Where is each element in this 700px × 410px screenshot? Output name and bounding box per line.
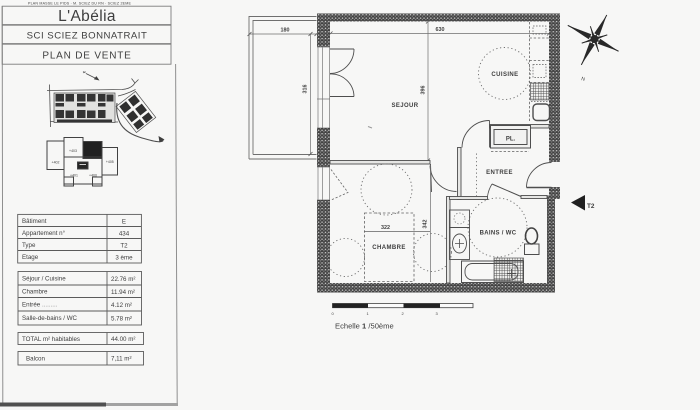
svg-text:Echelle 1 /50ème: Echelle 1 /50ème xyxy=(335,322,394,331)
svg-text:PLAN MASSE LE PIDS · M. SCIEZ: PLAN MASSE LE PIDS · M. SCIEZ DU RN · SC… xyxy=(28,2,131,6)
svg-text:SCI SCIEZ BONNATRAIT: SCI SCIEZ BONNATRAIT xyxy=(27,31,148,42)
svg-text:7,11 m²: 7,11 m² xyxy=(111,356,132,363)
svg-text:434: 434 xyxy=(119,230,130,237)
svg-text:Etage: Etage xyxy=(22,254,39,261)
svg-text:Chambre: Chambre xyxy=(22,289,48,296)
svg-text:+403: +403 xyxy=(69,149,77,153)
svg-text:630: 630 xyxy=(436,27,445,33)
svg-text:322: 322 xyxy=(381,225,390,231)
svg-text:Entrée .........: Entrée ......... xyxy=(22,302,58,309)
svg-text:22.76 m²: 22.76 m² xyxy=(111,276,135,283)
svg-text:5.78 m²: 5.78 m² xyxy=(111,316,132,323)
svg-text:CHAMBRE: CHAMBRE xyxy=(372,245,405,251)
svg-text:+401: +401 xyxy=(70,174,78,178)
svg-text:Type: Type xyxy=(22,242,36,249)
svg-text:+402: +402 xyxy=(52,161,60,165)
svg-text:Appartement n°: Appartement n° xyxy=(22,230,66,237)
svg-text:Séjour / Cuisine: Séjour / Cuisine xyxy=(22,276,66,283)
svg-text:PL.: PL. xyxy=(506,137,516,143)
svg-text:342: 342 xyxy=(423,220,429,229)
svg-text:44.00 m²: 44.00 m² xyxy=(111,336,135,343)
svg-text:4.12 m²: 4.12 m² xyxy=(111,302,132,309)
svg-text:TOTAL m² habitables: TOTAL m² habitables xyxy=(22,336,80,343)
svg-text:CUISINE: CUISINE xyxy=(491,72,518,78)
svg-text:PLAN DE VENTE: PLAN DE VENTE xyxy=(42,51,131,62)
svg-text:396: 396 xyxy=(421,86,427,95)
svg-text:11.94 m²: 11.94 m² xyxy=(111,289,135,296)
svg-text:3 ème: 3 ème xyxy=(115,254,133,261)
svg-text:ENTREE: ENTREE xyxy=(486,170,513,176)
svg-text:E: E xyxy=(122,218,126,225)
svg-text:T2: T2 xyxy=(587,203,595,210)
svg-text:Balcon: Balcon xyxy=(26,356,45,363)
svg-text:L'Abélia: L'Abélia xyxy=(58,8,116,25)
svg-text:Bâtiment: Bâtiment xyxy=(22,218,47,225)
svg-text:+405: +405 xyxy=(106,160,114,164)
svg-text:180: 180 xyxy=(281,28,290,34)
svg-text:Salle-de-bains / WC: Salle-de-bains / WC xyxy=(22,315,78,322)
svg-text:+400: +400 xyxy=(89,174,97,178)
svg-text:316: 316 xyxy=(303,85,309,94)
svg-text:SEJOUR: SEJOUR xyxy=(391,103,418,109)
svg-text:BAINS / WC: BAINS / WC xyxy=(480,231,517,237)
svg-text:T2: T2 xyxy=(120,242,128,249)
